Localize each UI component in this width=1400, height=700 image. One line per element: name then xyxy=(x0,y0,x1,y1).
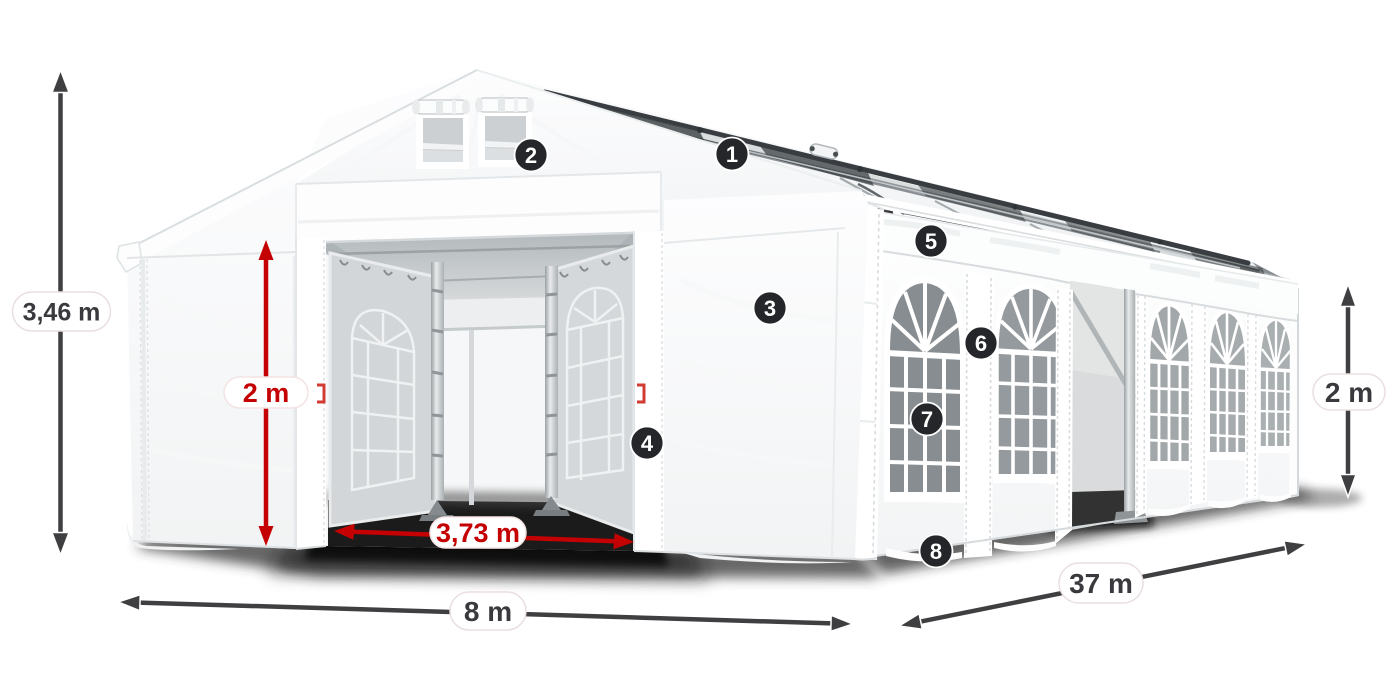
svg-text:6: 6 xyxy=(975,331,987,356)
svg-text:37 m: 37 m xyxy=(1069,568,1133,599)
svg-text:4: 4 xyxy=(641,431,654,456)
svg-text:3: 3 xyxy=(764,296,776,321)
svg-text:7: 7 xyxy=(921,407,933,432)
svg-text:2 m: 2 m xyxy=(243,378,290,408)
svg-text:2: 2 xyxy=(525,143,537,168)
svg-text:3,46 m: 3,46 m xyxy=(23,299,101,327)
svg-text:1: 1 xyxy=(726,142,738,167)
svg-text:3,73 m: 3,73 m xyxy=(436,518,520,548)
svg-text:8 m: 8 m xyxy=(464,596,512,627)
svg-text:2 m: 2 m xyxy=(1325,377,1373,408)
svg-text:8: 8 xyxy=(930,539,942,564)
svg-text:5: 5 xyxy=(925,229,937,254)
